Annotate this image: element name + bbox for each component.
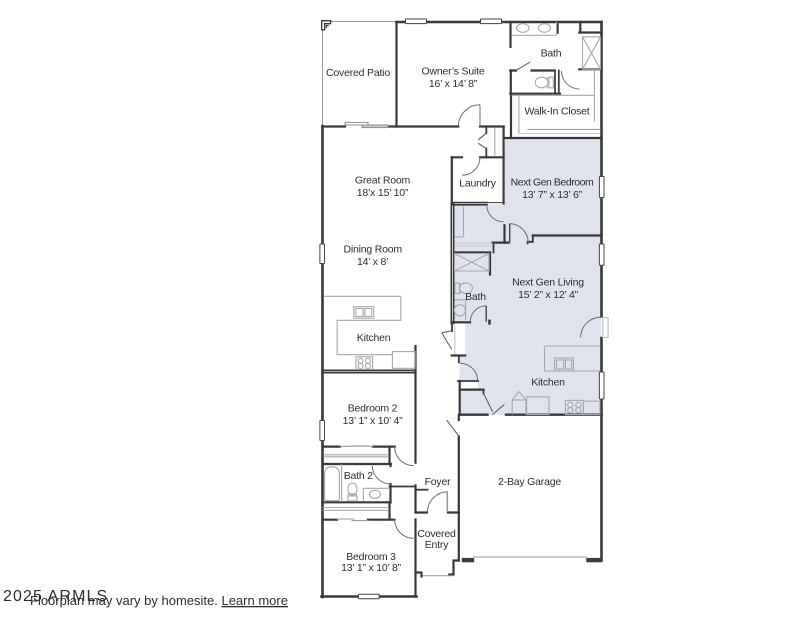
svg-text:Covered Patio: Covered Patio [326, 67, 390, 79]
svg-text:13’ 7” x 13’ 6”: 13’ 7” x 13’ 6” [522, 189, 583, 201]
svg-text:13’ 1” x 10’ 4”: 13’ 1” x 10’ 4” [343, 415, 404, 427]
svg-text:14’ x 8’: 14’ x 8’ [357, 256, 388, 268]
svg-text:16’ x 14’ 8”: 16’ x 14’ 8” [429, 78, 478, 90]
svg-text:Kitchen: Kitchen [531, 377, 565, 389]
svg-text:18’x 15’ 10”: 18’x 15’ 10” [357, 187, 409, 199]
svg-text:Bath: Bath [465, 291, 486, 303]
svg-text:13’ 1” x 10’ 8”: 13’ 1” x 10’ 8” [341, 562, 402, 574]
svg-text:Dining Room: Dining Room [343, 244, 402, 256]
svg-text:Entry: Entry [425, 539, 449, 551]
svg-text:Walk-In Closet: Walk-In Closet [524, 106, 589, 118]
svg-text:Foyer: Foyer [425, 476, 452, 488]
svg-text:2025 ARMLS: 2025 ARMLS [3, 588, 108, 605]
svg-text:Laundry: Laundry [459, 178, 496, 190]
svg-text:Next Gen Bedroom: Next Gen Bedroom [511, 177, 594, 189]
svg-text:15’ 2” x 12’ 4”: 15’ 2” x 12’ 4” [518, 289, 579, 301]
svg-text:Kitchen: Kitchen [357, 332, 391, 344]
svg-text:Owner’s Suite: Owner’s Suite [422, 66, 485, 78]
svg-text:Bath: Bath [541, 48, 562, 60]
svg-text:2-Bay Garage: 2-Bay Garage [498, 476, 561, 488]
svg-text:Bedroom 2: Bedroom 2 [348, 403, 398, 415]
svg-text:Next Gen Living: Next Gen Living [512, 277, 584, 289]
svg-text:Great Room: Great Room [355, 175, 411, 187]
svg-text:Bath 2: Bath 2 [344, 470, 374, 482]
